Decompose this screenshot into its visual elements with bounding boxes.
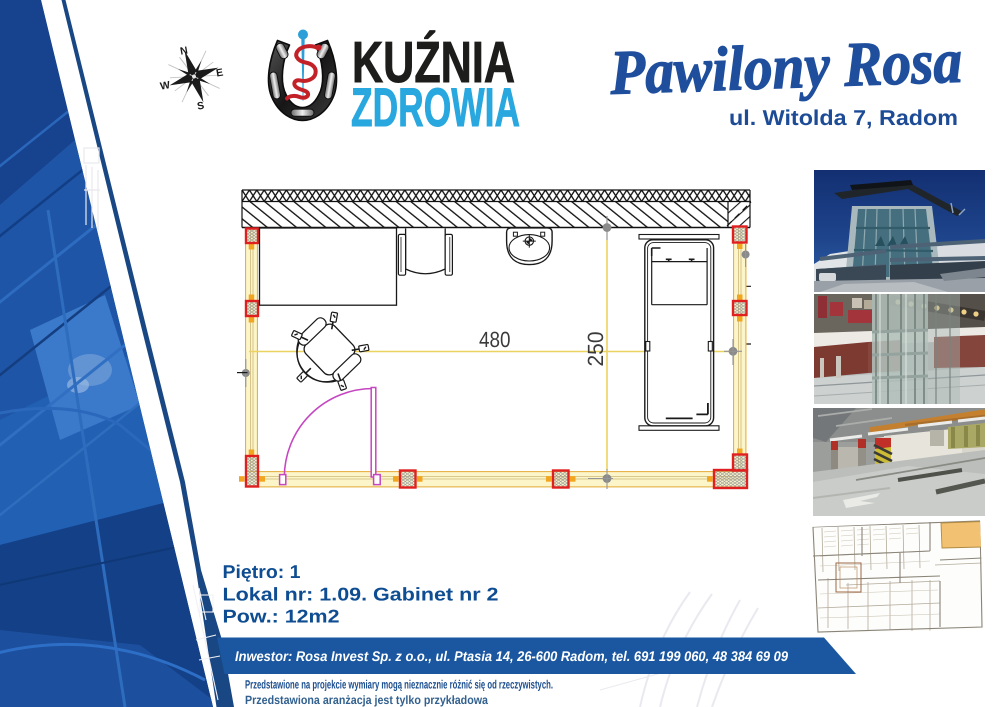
svg-text:Piętro: 1: Piętro: 1 [223,561,301,582]
svg-text:Inwestor: Rosa Invest Sp. z o.: Inwestor: Rosa Invest Sp. z o.o., ul. Pt… [235,648,788,664]
svg-text:ul. Witolda 7, Radom: ul. Witolda 7, Radom [729,106,958,130]
svg-text:Pawilony Rosa: Pawilony Rosa [608,26,963,108]
svg-text:Lokal nr: 1.09. Gabinet nr 2: Lokal nr: 1.09. Gabinet nr 2 [223,584,499,605]
svg-text:ZDROWIA: ZDROWIA [351,77,520,138]
svg-text:Przedstawiona aranżacja jest t: Przedstawiona aranżacja jest tylko przyk… [245,693,488,707]
svg-text:Przedstawione na projekcie wym: Przedstawione na projekcie wymiary mogą … [245,678,553,692]
svg-text:250: 250 [583,332,608,367]
svg-text:480: 480 [479,327,511,352]
svg-text:Pow.: 12m2: Pow.: 12m2 [223,606,340,627]
